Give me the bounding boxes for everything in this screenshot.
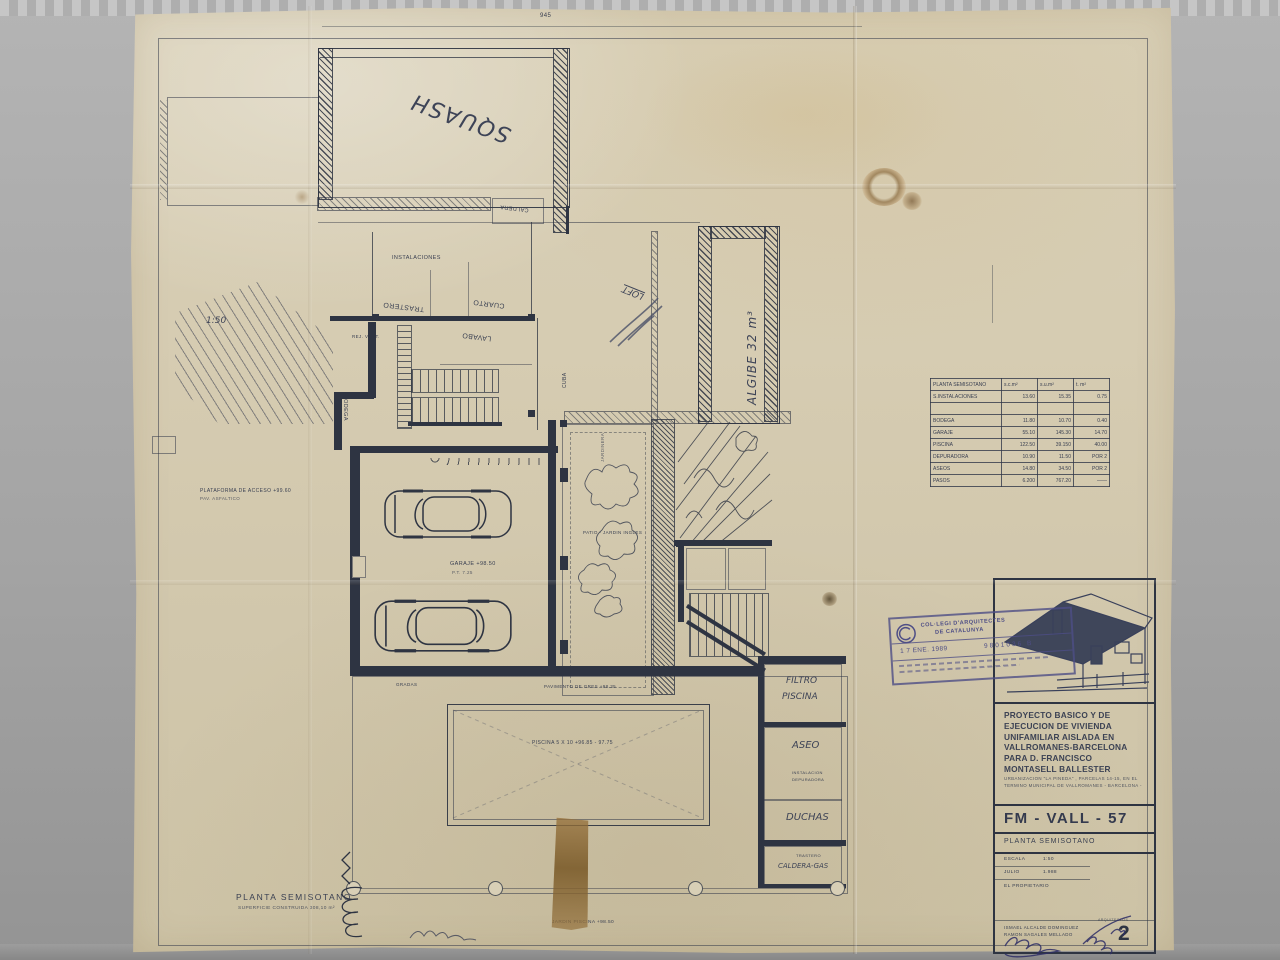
pier [560, 640, 568, 654]
wall-line [531, 222, 532, 318]
pier [560, 468, 568, 482]
shaft-hatch [398, 326, 411, 428]
jardinera-label: JARDINERA [600, 433, 605, 462]
plataforma-label: PLATAFORMA DE ACCESO +99.60 [200, 488, 291, 494]
wall-line [568, 222, 700, 223]
cuba-label: CUBA [562, 373, 568, 389]
area-value: POR 2 [1074, 463, 1110, 475]
jamb [560, 420, 567, 427]
gradas-label: GRADAS [396, 682, 417, 687]
grid-bubble [830, 881, 845, 896]
small-room [728, 548, 766, 590]
hand-scribble [408, 922, 478, 946]
squash-room [318, 48, 570, 208]
bottom-dimension-line [352, 888, 846, 889]
partition-line [440, 364, 532, 365]
area-value: 15.35 [1038, 391, 1074, 403]
area-value: 122.50 [1002, 439, 1038, 451]
table-row: GARAJE55.10145.3014.70 [931, 427, 1110, 439]
area-value: 10.90 [1002, 451, 1038, 463]
stamp-org-2: DE CATALUNYA [935, 627, 984, 636]
retaining-wall-hatch [160, 100, 167, 200]
partition-line [430, 270, 431, 318]
jamb [528, 410, 535, 417]
car-plan-1 [383, 483, 513, 545]
table-row: PISCINA122.5039.15040.00 [931, 439, 1110, 451]
stamp-number: 9801036 B [984, 640, 1034, 650]
garage-wall-top [350, 446, 558, 453]
algibe-label: ALGIBE 32 m³ [745, 310, 759, 405]
col-header: s.c.m² [1002, 379, 1038, 391]
area-table: PLANTA SEMISOTANO s.c.m² s.u.m² t. m² S.… [930, 378, 1110, 487]
area-value: 55.10 [1002, 427, 1038, 439]
table-row: PASOS6.200767.20—— [931, 475, 1110, 487]
area-value: 40.00 [1074, 439, 1110, 451]
grid-bubble [488, 881, 503, 896]
wall-line [537, 318, 538, 430]
area-value: 13.60 [1002, 391, 1038, 403]
fecha-mes: JULIO [1004, 870, 1020, 875]
area-value [1074, 403, 1110, 415]
area-value: 34.50 [1038, 463, 1074, 475]
stamp-org-1: COL·LEGI D'ARQUITECTES [920, 618, 1005, 629]
partition-line [468, 262, 469, 318]
area-value: —— [1074, 475, 1110, 487]
table-row: BODEGA11.8010.700.40 [931, 415, 1110, 427]
propietario-label: EL PROPIETARIO [1004, 884, 1049, 889]
garage-wall-right [548, 420, 556, 676]
grid-bubble [688, 881, 703, 896]
area-value: 767.20 [1038, 475, 1074, 487]
car-plan-2 [373, 593, 513, 659]
area-value: 11.50 [1038, 451, 1074, 463]
construction-line [992, 265, 993, 323]
jamb [548, 468, 555, 475]
project-title: PROYECTO BASICO Y DE EJECUCION DE VIVIEN… [1004, 710, 1142, 775]
pool-diagonals [453, 710, 702, 818]
heavy-wall [678, 546, 684, 622]
patio-label: PATIO - JARDIN INGLES [583, 530, 642, 535]
table-row: DEPURADORA10.9011.50POR 2 [931, 451, 1110, 463]
door-symbol [430, 458, 546, 465]
room-name: S.INSTALACIONES [931, 391, 1002, 403]
pier [560, 556, 568, 570]
area-value: POR 2 [1074, 451, 1110, 463]
jamb [528, 314, 535, 321]
garaje-label: GARAJE +98.50 [450, 561, 496, 567]
jamb [372, 314, 379, 321]
area-value: 145.30 [1038, 427, 1074, 439]
project-code: FM - VALL - 57 [1004, 810, 1128, 827]
jamb [676, 540, 683, 547]
squash-wall-left [319, 49, 332, 199]
room-name: DEPURADORA [931, 451, 1002, 463]
heavy-wall [674, 540, 772, 546]
pilaster [352, 556, 366, 578]
table-title: PLANTA SEMISOTANO [931, 379, 1002, 391]
heavy-wall [408, 422, 502, 426]
architects-college-stamp: COL·LEGI D'ARQUITECTES DE CATALUNYA 1 7 … [888, 606, 1076, 685]
planter-strip-hatch [652, 420, 674, 694]
handwritten-scribble [588, 290, 668, 360]
wall-line [372, 232, 373, 318]
heavy-wall-poolside [352, 666, 764, 676]
plan-caption-area: SUPERFICIE CONSTRUIDA 308,10 m² [238, 906, 335, 911]
area-value: 10.70 [1038, 415, 1074, 427]
signatures [999, 916, 1149, 952]
algibe-wall-left [699, 227, 711, 421]
tape-repair [552, 818, 591, 931]
area-value [1002, 403, 1038, 415]
area-value: 11.80 [1002, 415, 1038, 427]
area-table-body: S.INSTALACIONES13.6015.350.75BODEGA11.80… [931, 391, 1110, 487]
heavy-wall [334, 392, 342, 450]
table-row: S.INSTALACIONES13.6015.350.75 [931, 391, 1110, 403]
piscina-label: PISCINA 5 X 10 +96.85 - 97.75 [532, 740, 613, 746]
room-name: PISCINA [931, 439, 1002, 451]
area-value: 14.70 [1074, 427, 1110, 439]
table-row: ASEOS14.8034.50POR 2 [931, 463, 1110, 475]
room-name: GARAJE [931, 427, 1002, 439]
heavy-wall [330, 316, 532, 321]
terrace-outline [167, 97, 319, 206]
photo-of-blueprint: 945 SQUASH CALDERA INSTALACIONES TRASTER… [0, 0, 1280, 960]
area-value: 6.200 [1002, 475, 1038, 487]
dimension-line [322, 26, 862, 27]
small-detail-box [152, 436, 176, 454]
stair-flight-upper [412, 370, 498, 392]
pavimento-label: PAVIMENTO DE GRES +98.35 [544, 684, 616, 689]
garaje-label2: P.T. 7.25 [452, 570, 473, 575]
vegetation-scribble [676, 418, 772, 546]
escala-label: ESCALA [1004, 857, 1025, 862]
dimension-label: 945 [540, 13, 551, 19]
col-header: t. m² [1074, 379, 1110, 391]
area-value: 0.75 [1074, 391, 1110, 403]
heavy-wall [758, 656, 846, 664]
wall-segment [566, 206, 569, 234]
area-value: 39.150 [1038, 439, 1074, 451]
heavy-wall [368, 322, 376, 398]
scale-handnote: 1:50 [206, 316, 226, 326]
room-name: PASOS [931, 475, 1002, 487]
instalaciones-label: INSTALACIONES [392, 255, 441, 261]
project-location: URBANIZACION "LA PINEDA" , PARCELAS 14-1… [1004, 776, 1142, 789]
room-name: ASEOS [931, 463, 1002, 475]
table-title-row: PLANTA SEMISOTANO s.c.m² s.u.m² t. m² [931, 379, 1110, 391]
plataforma-label2: PAV. ASFALTICO [200, 496, 240, 501]
spring-scribble [332, 852, 368, 944]
area-value: 14.80 [1002, 463, 1038, 475]
area-value: 0.40 [1074, 415, 1110, 427]
escala-value: 1:50 [1043, 857, 1054, 862]
area-value [1038, 403, 1074, 415]
algibe-wall-top [711, 227, 765, 238]
small-room [686, 548, 726, 590]
stamp-date: 1 7 ENE. 1989 [900, 645, 948, 655]
col-header: s.u.m² [1038, 379, 1074, 391]
room-name: BODEGA [931, 415, 1002, 427]
algibe-wall-right [765, 227, 777, 421]
fecha-anyo: 1.988 [1043, 870, 1057, 875]
stair-flight-lower [412, 398, 498, 422]
sheet-title: PLANTA SEMISOTANO [1004, 838, 1095, 845]
squash-wall-right [554, 49, 567, 232]
table-row [931, 403, 1110, 415]
squash-wall-bottom [318, 198, 490, 210]
room-name [931, 403, 1002, 415]
squash-wall-top-line [320, 57, 554, 58]
